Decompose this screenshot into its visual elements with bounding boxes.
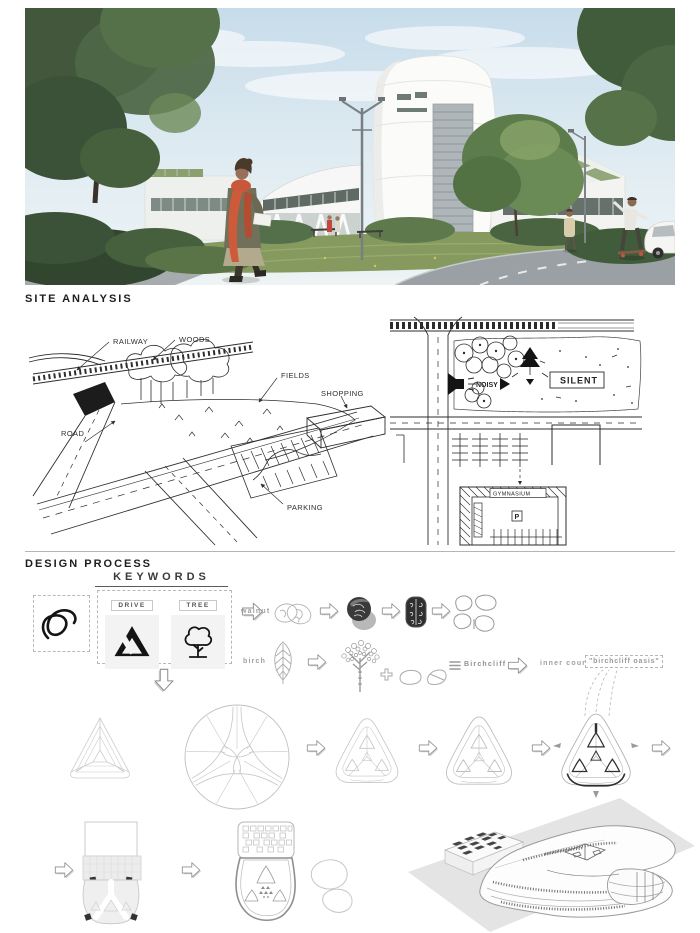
form-step-final [553, 714, 639, 798]
label-gymnasium: GYMNASIUM [493, 492, 531, 498]
site-plan-detailed [236, 822, 295, 920]
keyword-drive: DRIVE [104, 594, 160, 669]
hero-render-image [25, 8, 675, 285]
keywords-title: KEYWORDS [95, 571, 228, 587]
label-parking: PARKING [287, 503, 323, 512]
keyword-drive-label: DRIVE [111, 600, 152, 611]
presentation-board: SITE ANALYSIS [0, 0, 700, 933]
pebble-shapes-sketch [311, 860, 352, 913]
adobe-acrobat-icon [34, 596, 89, 651]
arrow-right-icon [318, 601, 341, 621]
form-step-3 [336, 719, 398, 783]
label-shopping: SHOPPING [321, 389, 364, 398]
google-drive-icon [112, 623, 152, 661]
label-noisy: NOISY [476, 382, 498, 389]
keywords-box: DRIVE TREE [97, 590, 232, 664]
speaker-icon [448, 373, 464, 395]
arrow-right-icon [652, 741, 671, 757]
form-step-4 [446, 717, 511, 784]
label-parking-p: P [515, 514, 520, 521]
site-application-row [25, 790, 700, 933]
label-railway: RAILWAY [113, 337, 148, 346]
arrow-right-icon [182, 863, 201, 879]
label-fields: FIELDS [281, 371, 310, 380]
tree-icon [180, 622, 216, 662]
direction-triangle-icon [500, 378, 510, 390]
form-step-wireframe [71, 718, 130, 778]
site-analysis-axon-sketch: RAILWAY WOODS FIELDS SHOPPING ROAD PARKI… [25, 308, 387, 546]
arrow-right-icon [307, 741, 326, 757]
site-analysis-plan-sketch: NOISY SILENT GYMNASIUM P [390, 295, 690, 547]
walnut-sketch [272, 598, 314, 628]
final-axonometric-render [408, 798, 695, 932]
keyword-tree: TREE [170, 594, 226, 669]
keyword-source-box [33, 595, 90, 652]
keyword-tree-label: TREE [179, 600, 216, 611]
label-road: ROAD [61, 429, 84, 438]
arrow-right-icon [532, 741, 551, 757]
walnut-solid-illustration [344, 594, 378, 632]
label-silent: SILENT [560, 376, 598, 386]
site-plan-massing [83, 822, 141, 924]
walnut-label: walnut [241, 608, 270, 615]
arrow-right-icon [380, 601, 403, 621]
walnut-half-illustration [404, 595, 428, 629]
projection-lines [585, 670, 617, 716]
site-analysis-heading: SITE ANALYSIS [25, 293, 133, 305]
arrow-right-icon [55, 863, 74, 879]
label-woods: WOODS [179, 335, 210, 344]
arrow-right-icon [430, 601, 453, 621]
design-process-heading: DESIGN PROCESS [25, 558, 152, 570]
kernel-shapes-sketch [452, 593, 506, 635]
arrow-right-icon [419, 741, 438, 757]
section-divider [25, 551, 675, 552]
